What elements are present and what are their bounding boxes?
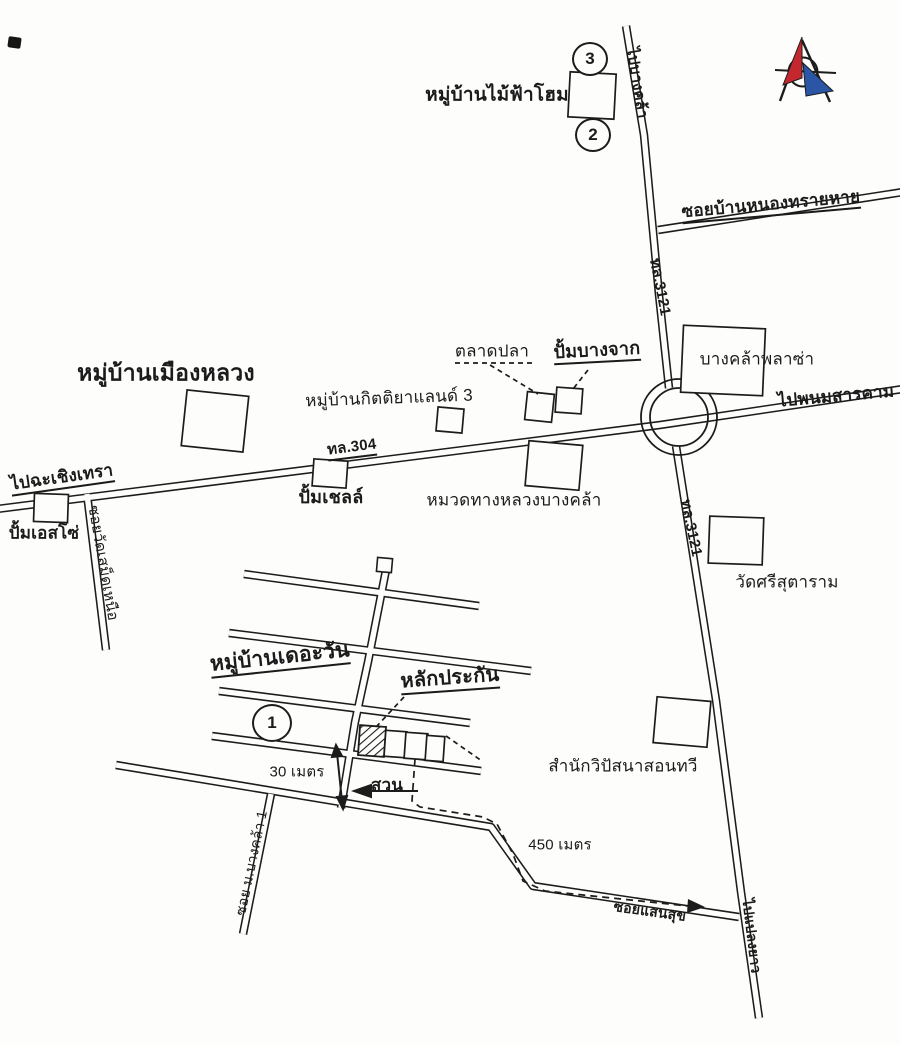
- bangchak-leader: [573, 370, 588, 389]
- road-casings: [0, 26, 900, 1018]
- building-row-3: [425, 735, 445, 761]
- building-esso: [34, 493, 69, 522]
- compass-rose: [775, 37, 836, 102]
- building-row-1: [383, 730, 407, 757]
- label-wat-si-sutaram: วัดศรีสุตาราม: [735, 574, 838, 591]
- label-fish-market: ตลาดปลา: [455, 343, 529, 360]
- building-bangchak: [555, 387, 583, 414]
- road-fills: [0, 26, 900, 1018]
- fish-market-leader: [490, 365, 538, 394]
- marker-1: 1: [252, 704, 292, 742]
- label-bangchak: ปั้มบางจาก: [553, 339, 641, 366]
- building-mueang-luang: [181, 390, 249, 452]
- compass-south-blue: [803, 63, 833, 96]
- building-wat-si-sutaram: [708, 516, 764, 565]
- label-village-maifahome: หมู่บ้านไม้ฟ้าโฮม: [425, 86, 569, 105]
- scan-artifact: [7, 36, 21, 49]
- label-esso: ปั้มเอสโซ่: [9, 525, 79, 542]
- marker-2: 2: [575, 118, 611, 152]
- building-shell: [312, 459, 348, 488]
- label-village-mueang-luang: หมู่บ้านเมืองหลวง: [77, 362, 255, 385]
- village-soi-stub: [376, 557, 392, 572]
- building-fish-market: [525, 392, 555, 423]
- compass-north-red: [783, 37, 802, 85]
- map-drawing: [0, 0, 900, 1045]
- parcel-diagonal: [446, 736, 482, 761]
- route-450m-dashed: [412, 759, 688, 906]
- building-maifahome: [568, 72, 616, 119]
- label-meditation-center: สำนักวิปัสนาสอนทวี: [548, 758, 697, 775]
- map-page: 3 2 1 หมู่บ้านไม้ฟ้าโฮม ไปบางคล้า ซอยบ้า…: [0, 0, 900, 1045]
- marker-3: 3: [572, 42, 608, 76]
- road-long-south: [116, 765, 739, 917]
- building-highway-district: [525, 441, 583, 491]
- label-distance-30m: 30 เมตร: [269, 765, 324, 780]
- label-bangkhla-plaza: บางคล้าพลาซ่า: [700, 351, 814, 368]
- collateral-building-hatched: [358, 725, 386, 757]
- building-kittiya-land: [436, 407, 464, 433]
- building-meditation-center: [653, 697, 711, 748]
- building-row-2: [404, 732, 428, 759]
- label-distance-450m: 450 เมตร: [528, 838, 592, 853]
- label-garden: สวน: [371, 777, 403, 794]
- label-highway-district: หมวดทางหลวงบางคล้า: [427, 492, 602, 509]
- label-shell: ปั้มเชลล์: [299, 488, 364, 506]
